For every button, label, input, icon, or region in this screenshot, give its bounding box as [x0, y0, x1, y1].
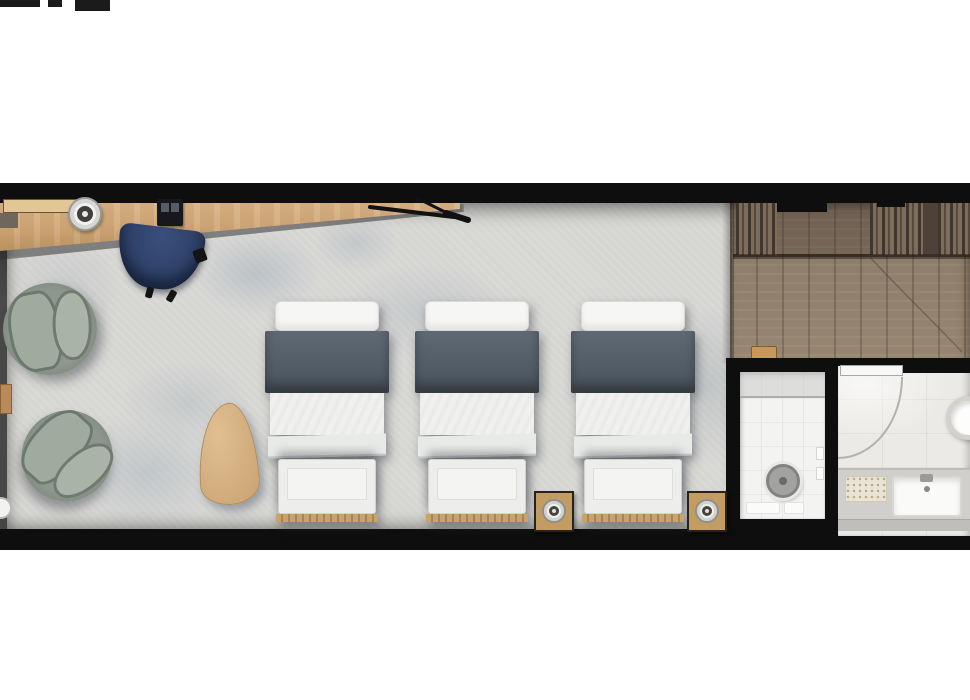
bed-runner — [415, 331, 539, 393]
bath-mat — [746, 502, 780, 514]
bench-legs — [426, 514, 528, 522]
hanging-clothes — [938, 201, 970, 255]
entry-hardwood — [730, 200, 970, 365]
bed — [574, 298, 692, 522]
cropped-artifact — [0, 0, 40, 7]
duvet-fold — [574, 433, 692, 458]
bedside-table — [534, 491, 574, 532]
wardrobe-partition — [877, 196, 905, 207]
vanity-sink — [892, 476, 962, 517]
bench-legs — [276, 514, 378, 522]
floor-plan — [0, 0, 970, 700]
bench-legs — [582, 514, 684, 522]
duvet-fold — [418, 433, 536, 458]
wall-fixture — [816, 467, 824, 480]
shower-glass — [740, 372, 825, 398]
foot-bench — [278, 459, 376, 514]
bedside-table — [687, 491, 727, 532]
faucet — [920, 474, 933, 482]
bath-mat — [784, 502, 804, 514]
duvet — [576, 393, 690, 435]
pillow — [275, 301, 379, 331]
floor-transition-shadow — [722, 203, 734, 363]
duvet — [270, 393, 384, 435]
table-lamp — [542, 499, 566, 523]
duvet — [420, 393, 534, 435]
wall-fixture — [816, 447, 824, 460]
foot-bench — [584, 459, 682, 514]
vanity-counter — [838, 468, 970, 529]
desk-lamp — [68, 197, 102, 231]
bathroom-door — [840, 365, 903, 376]
counter-towel — [845, 476, 887, 502]
hanging-clothes — [736, 201, 777, 255]
vanity-front-edge — [838, 519, 970, 531]
phone-dock — [157, 199, 183, 226]
bed — [418, 298, 536, 522]
wall-side-table — [0, 384, 12, 414]
faucet-dot — [924, 486, 930, 492]
wardrobe-shelf-edge — [733, 254, 970, 259]
shower-head — [766, 464, 800, 498]
bed-runner — [265, 331, 389, 393]
cropped-artifact — [75, 0, 110, 11]
shower-room — [740, 372, 825, 519]
desk-niche — [0, 213, 18, 228]
wardrobe-partition — [777, 196, 827, 212]
pillow — [581, 301, 685, 331]
pillow — [425, 301, 529, 331]
wall-top-right — [903, 358, 970, 373]
duvet-fold — [268, 433, 386, 458]
cropped-artifact — [48, 0, 62, 7]
hanging-clothes — [870, 201, 923, 255]
wardrobe-divider — [923, 201, 938, 257]
bed — [268, 298, 386, 522]
table-lamp — [695, 499, 719, 523]
bed-runner — [571, 331, 695, 393]
foot-bench — [428, 459, 526, 514]
